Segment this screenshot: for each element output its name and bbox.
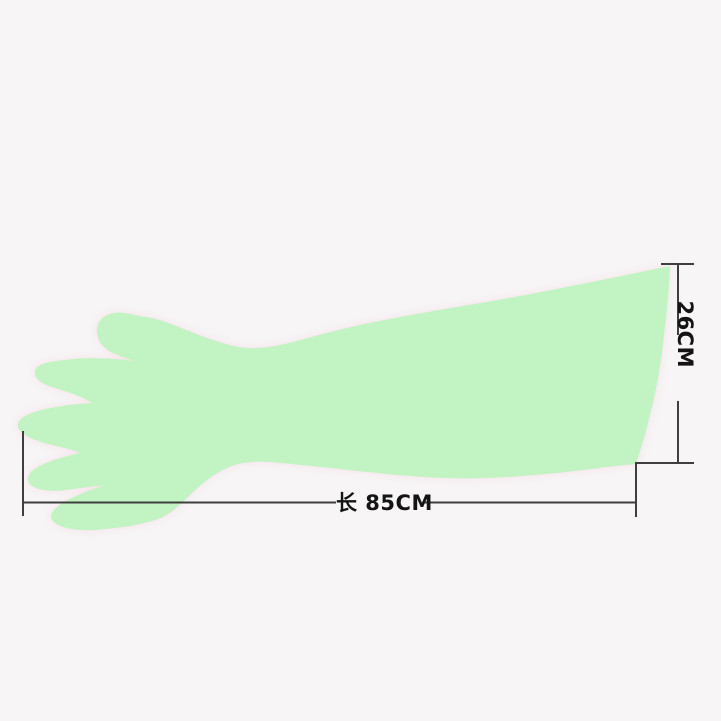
width-dimension-label-text: 26CM [673, 300, 697, 368]
glove-diagram [0, 0, 721, 721]
length-dimension-label: 长 85CM [336, 491, 424, 515]
product-image: 长 85CM 26CM [0, 0, 721, 721]
